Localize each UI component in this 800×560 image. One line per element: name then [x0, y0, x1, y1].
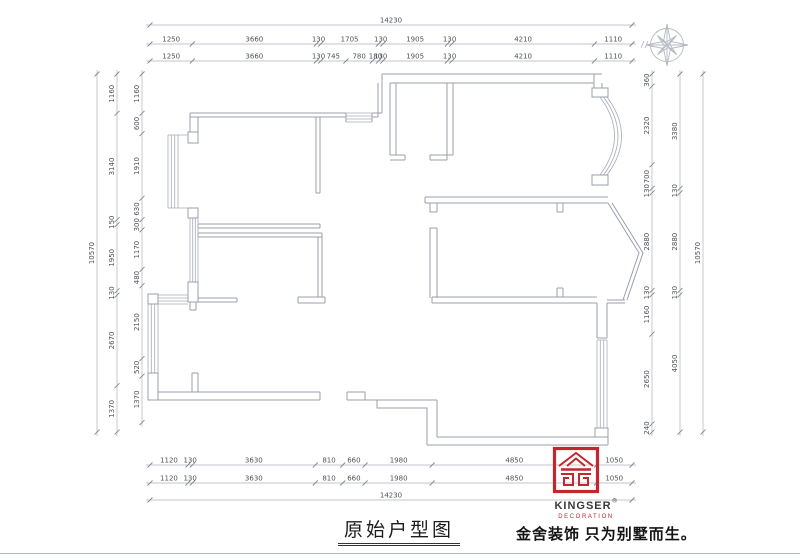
wall-right-slant — [607, 203, 643, 303]
svg-text:1910: 1910 — [133, 157, 141, 175]
svg-text:1160: 1160 — [643, 306, 651, 324]
svg-text:4210: 4210 — [514, 36, 532, 44]
dim-left-outer: 11603140150195013026701370 — [108, 70, 120, 436]
svg-text:4850: 4850 — [505, 475, 523, 483]
dim-top-row2: 12503660130745780180130190513042101110 — [146, 53, 636, 64]
registered-mark-icon: ® — [612, 498, 618, 505]
svg-text:2650: 2650 — [643, 370, 651, 388]
drawing-title-block: 原始户型图 — [338, 515, 460, 546]
wall-lowerright-room — [347, 228, 608, 445]
svg-text:130: 130 — [643, 286, 651, 299]
brand-rule-line — [0, 553, 800, 554]
svg-text:130: 130 — [183, 457, 196, 465]
svg-text:360: 360 — [643, 73, 651, 86]
svg-text:130: 130 — [374, 53, 387, 61]
svg-text:1160: 1160 — [108, 85, 116, 103]
svg-text:1110: 1110 — [604, 53, 622, 61]
svg-text:1370: 1370 — [133, 390, 141, 408]
dim-top-row1: 125036601301705130190513042101110 — [146, 36, 636, 47]
svg-text:2670: 2670 — [108, 331, 116, 349]
svg-text:1250: 1250 — [162, 53, 180, 61]
dim-left-overall: 10570 — [88, 70, 100, 436]
svg-text:520: 520 — [133, 361, 141, 374]
svg-text:810: 810 — [322, 475, 335, 483]
svg-text:130: 130 — [183, 475, 196, 483]
svg-text:1705: 1705 — [341, 36, 359, 44]
svg-text:4210: 4210 — [514, 53, 532, 61]
svg-text:630: 630 — [133, 202, 141, 215]
kingser-logo-text: KINGSER® DECORATION — [551, 445, 621, 521]
dim-right-inner: 3602320700130288013011602650240 — [643, 70, 655, 436]
floorplan-canvas: 14230 125036601301705130190513042101110 … — [0, 0, 800, 560]
compass-rose-icon — [646, 24, 688, 66]
logo-subtitle: DECORATION — [551, 513, 621, 521]
svg-text:130: 130 — [312, 36, 325, 44]
svg-text:4050: 4050 — [671, 355, 679, 373]
drawing-title: 原始户型图 — [338, 515, 460, 544]
svg-text:130: 130 — [443, 36, 456, 44]
svg-text:480: 480 — [133, 271, 141, 284]
svg-text:2880: 2880 — [643, 233, 651, 251]
wall-pier — [595, 428, 608, 437]
svg-text:2880: 2880 — [671, 233, 679, 251]
window-right-lower — [597, 340, 607, 428]
svg-text:2150: 2150 — [133, 313, 141, 331]
svg-text:1980: 1980 — [390, 457, 408, 465]
wall-pier — [592, 175, 608, 185]
wall-topright-room — [425, 74, 608, 212]
svg-text:2320: 2320 — [643, 117, 651, 135]
svg-text:3630: 3630 — [245, 475, 263, 483]
svg-text:1120: 1120 — [160, 475, 178, 483]
dim-right-outer: 338013028801304050 — [671, 70, 683, 436]
svg-text:3140: 3140 — [108, 158, 116, 176]
svg-text:745: 745 — [327, 53, 340, 61]
svg-text:130: 130 — [671, 286, 679, 299]
wall-pier — [188, 282, 198, 302]
dim-top-overall: 14230 — [146, 17, 636, 28]
svg-text:660: 660 — [347, 457, 360, 465]
svg-text:14230: 14230 — [380, 492, 402, 500]
svg-text:1905: 1905 — [406, 36, 424, 44]
drawing-sheet: 14230 125036601301705130190513042101110 … — [0, 0, 800, 560]
dim-left-inner: 11606001910630300117048021505201370 — [133, 70, 145, 427]
bay-window-left — [168, 135, 188, 208]
svg-text:1160: 1160 — [133, 85, 141, 103]
svg-text:1905: 1905 — [406, 53, 424, 61]
wall-right-lower — [597, 303, 607, 338]
svg-text:1120: 1120 — [160, 457, 178, 465]
svg-text:4850: 4850 — [505, 457, 523, 465]
wall-pier — [188, 208, 198, 218]
svg-text:1370: 1370 — [108, 400, 116, 418]
svg-text:130: 130 — [312, 53, 325, 61]
svg-text:240: 240 — [643, 421, 651, 434]
windows — [148, 97, 622, 428]
svg-text:1980: 1980 — [390, 475, 408, 483]
window-left-mid — [190, 218, 198, 282]
svg-text:1110: 1110 — [604, 36, 622, 44]
wall-pier — [148, 294, 158, 304]
svg-text:130: 130 — [108, 286, 116, 299]
svg-text:150: 150 — [108, 216, 116, 229]
svg-text:3660: 3660 — [245, 36, 263, 44]
wall-bottomleft-room — [148, 298, 320, 400]
wall-foyer — [390, 83, 453, 160]
wall-pier — [592, 88, 608, 97]
walls — [148, 74, 643, 445]
svg-text:1950: 1950 — [108, 249, 116, 267]
svg-text:3630: 3630 — [245, 457, 263, 465]
svg-text:14230: 14230 — [380, 17, 402, 25]
svg-text:300: 300 — [133, 218, 141, 231]
svg-text:600: 600 — [133, 117, 141, 130]
curved-bay-window-right — [600, 97, 622, 175]
window-left-corner — [148, 295, 188, 373]
wall-pier — [148, 373, 158, 400]
svg-text:130: 130 — [643, 184, 651, 197]
svg-text:660: 660 — [347, 475, 360, 483]
brand-slogan: 金舍装饰 只为别墅而生。 — [516, 523, 697, 544]
svg-text:10570: 10570 — [88, 242, 96, 264]
svg-text:780: 780 — [352, 53, 365, 61]
svg-text:700: 700 — [643, 170, 651, 183]
wall-midleft-room — [198, 117, 325, 303]
svg-text:130: 130 — [443, 53, 456, 61]
svg-text:130: 130 — [671, 184, 679, 197]
svg-text:3380: 3380 — [671, 122, 679, 140]
svg-text:130: 130 — [374, 36, 387, 44]
svg-text:3660: 3660 — [245, 53, 263, 61]
wall-pier — [188, 132, 198, 143]
window-top — [346, 113, 372, 122]
svg-text:10570: 10570 — [694, 242, 702, 264]
north-tick-mark — [641, 41, 648, 48]
svg-text:1170: 1170 — [133, 241, 141, 259]
logo-name: KINGSER — [554, 500, 611, 512]
title-underline — [338, 545, 460, 546]
dim-right-overall: 10570 — [694, 70, 706, 436]
svg-text:810: 810 — [322, 457, 335, 465]
svg-text:1250: 1250 — [162, 36, 180, 44]
